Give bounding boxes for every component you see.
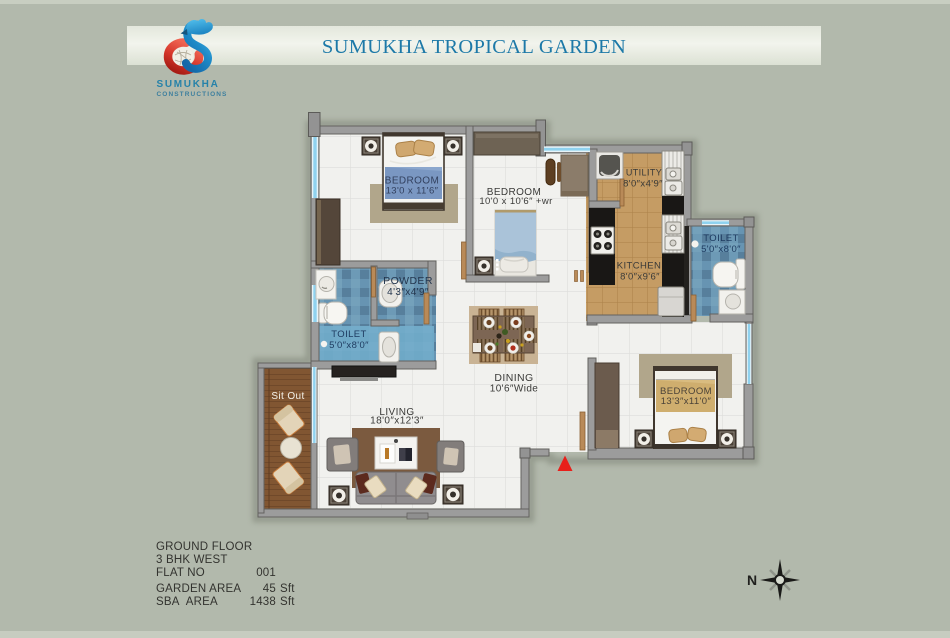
svg-text:DINING: DINING [494, 372, 533, 384]
svg-text:POWDER: POWDER [383, 275, 433, 287]
svg-text:18'0″x12'3″: 18'0″x12'3″ [370, 416, 424, 427]
svg-text:UTILITY: UTILITY [626, 168, 662, 178]
svg-text:TOILET: TOILET [331, 329, 366, 340]
svg-text:5'0″x8'0″: 5'0″x8'0″ [701, 244, 741, 255]
svg-text:KITCHEN: KITCHEN [617, 261, 662, 272]
svg-text:13'0 x 11'6″: 13'0 x 11'6″ [386, 186, 439, 197]
svg-text:TOILET: TOILET [703, 233, 738, 244]
svg-text:10'6″Wide: 10'6″Wide [490, 384, 539, 395]
svg-text:8'0″x9'6″: 8'0″x9'6″ [620, 272, 660, 283]
svg-text:13'3″x11'0″: 13'3″x11'0″ [661, 396, 712, 407]
svg-text:4'3″x4'9″: 4'3″x4'9″ [387, 287, 429, 298]
svg-text:Sit Out: Sit Out [271, 391, 304, 402]
svg-text:N: N [747, 572, 757, 588]
svg-text:8'0″x4'9″: 8'0″x4'9″ [623, 178, 663, 189]
svg-text:10'0 x 10'6″ +wr: 10'0 x 10'6″ +wr [479, 196, 552, 207]
svg-text:5'0″x8'0″: 5'0″x8'0″ [329, 340, 369, 351]
